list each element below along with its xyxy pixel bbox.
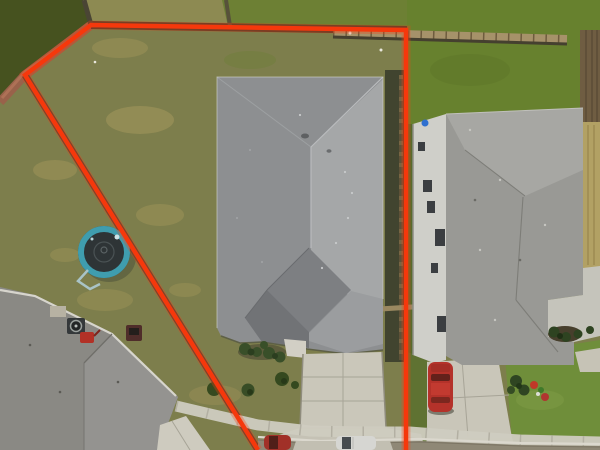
roof-speck <box>261 261 263 263</box>
roof-speck <box>29 344 32 347</box>
roof-speck <box>236 217 238 219</box>
aerial-photo <box>0 0 600 450</box>
right-house-window <box>423 180 432 192</box>
aerial-photo-svg <box>0 0 600 450</box>
right-house-window <box>418 142 425 151</box>
roof-speck <box>494 319 496 321</box>
toy-red <box>530 381 538 389</box>
green-grass-patch <box>430 54 510 86</box>
roof-speck <box>59 391 62 394</box>
roof-speck <box>351 192 353 194</box>
roof-speck <box>519 259 522 262</box>
street-car-white-windshield <box>342 437 351 449</box>
street-car-red-roof <box>269 436 278 449</box>
courtyard-bush <box>574 330 583 339</box>
trampoline-glint <box>91 238 94 241</box>
front-bush-shadow <box>272 353 278 359</box>
dry-grass-patch <box>136 204 184 226</box>
parked-car-roof <box>431 383 450 395</box>
parked-car-hood <box>431 364 450 372</box>
parked-car-windshield <box>431 374 450 381</box>
courtyard-bush-shadow <box>557 333 563 339</box>
roof-speck <box>347 217 349 219</box>
lawn-bush <box>291 381 299 389</box>
lawn-bush <box>507 386 515 394</box>
utility-pad <box>50 306 66 317</box>
roof-vent <box>327 149 332 153</box>
roof-speck <box>321 267 323 269</box>
roof-speck <box>299 114 301 116</box>
dry-grass-patch <box>50 248 80 262</box>
trampoline-glint <box>115 235 120 240</box>
right-house-window <box>435 229 445 246</box>
roof-speck <box>117 381 120 384</box>
front-bush <box>260 341 268 349</box>
roof-speck <box>474 199 477 202</box>
lawn-bush-shadow <box>247 389 253 395</box>
roof-speck <box>469 129 471 131</box>
dry-grass-patch <box>169 283 201 297</box>
lawn-bush-shadow <box>516 383 522 389</box>
roof-speck <box>499 179 501 181</box>
green-grass-patch <box>224 51 276 69</box>
right-house-window <box>427 201 435 213</box>
sprinkler-dot <box>380 49 383 52</box>
dry-field-strip <box>583 122 600 268</box>
courtyard-bush <box>586 326 594 334</box>
dry-grass-patch <box>33 160 77 180</box>
roof-speck <box>479 249 481 251</box>
toy-green <box>538 387 544 393</box>
roof-vent <box>301 134 309 139</box>
toy-white <box>536 392 540 396</box>
front-bush-shadow <box>248 349 255 356</box>
roof-speck <box>249 149 251 151</box>
right-house-window <box>431 263 438 273</box>
dark-red-object-top <box>129 328 139 335</box>
dry-grass-patch <box>77 289 133 311</box>
toy-red <box>541 393 549 401</box>
blue-object <box>422 120 429 127</box>
dry-grass-patch <box>106 106 174 134</box>
ac-fan-hub <box>75 325 78 328</box>
roof-speck <box>335 242 337 244</box>
dry-grass-patch <box>92 38 148 58</box>
sprinkler-dot <box>94 61 97 64</box>
roof-speck <box>544 224 546 226</box>
lawn-bush-shadow <box>281 378 287 384</box>
red-mower <box>80 332 94 343</box>
parked-car-rear-window <box>431 397 450 403</box>
roof-speck <box>344 171 346 173</box>
